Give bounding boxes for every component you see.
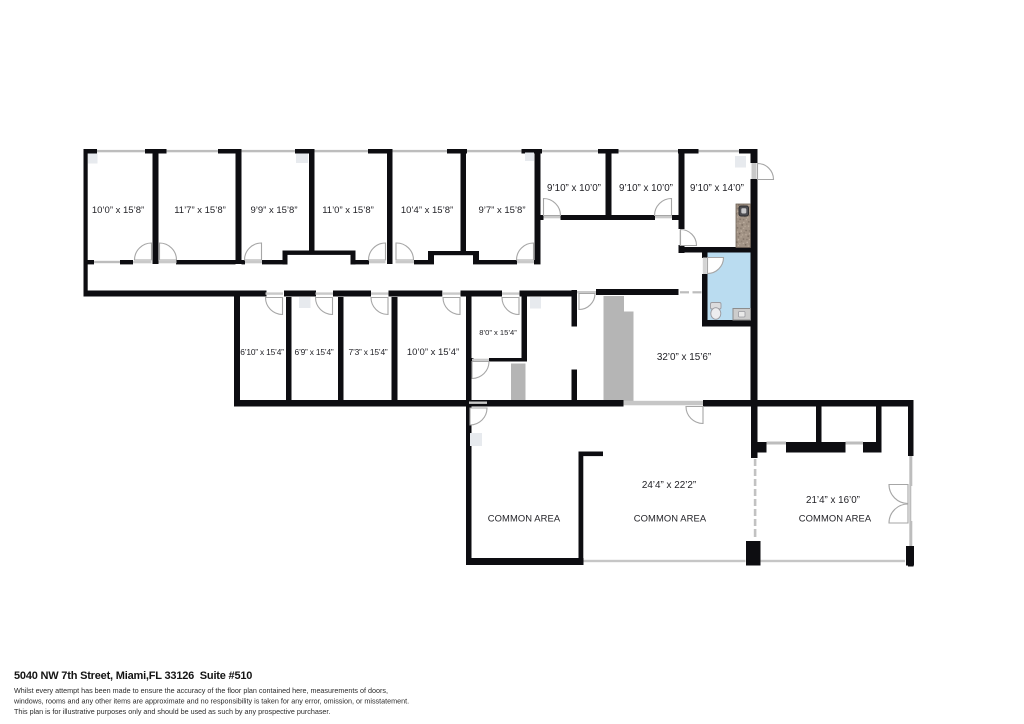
svg-text:COMMON AREA: COMMON AREA (488, 513, 561, 524)
svg-text:8’0” x 15’4”: 8’0” x 15’4” (479, 328, 517, 337)
svg-text:9’10” x 10’0”: 9’10” x 10’0” (547, 183, 601, 194)
svg-text:6’9” x 15’4”: 6’9” x 15’4” (294, 347, 333, 357)
svg-text:10’0” x 15’4”: 10’0” x 15’4” (407, 347, 459, 358)
svg-text:10’0” x 15’8”: 10’0” x 15’8” (92, 205, 144, 216)
svg-text:6’10” x 15’4”: 6’10” x 15’4” (240, 347, 284, 357)
svg-text:This plan is for illustrative: This plan is for illustrative purposes o… (14, 707, 330, 716)
svg-text:COMMON AREA: COMMON AREA (799, 513, 872, 524)
svg-text:5040 NW 7th Street, Miami,FL 3: 5040 NW 7th Street, Miami,FL 33126 Suite… (14, 670, 252, 682)
svg-text:9’10” x 10’0”: 9’10” x 10’0” (619, 183, 673, 194)
svg-text:24’4” x 22’2”: 24’4” x 22’2” (642, 480, 696, 491)
svg-text:windows, rooms and any other i: windows, rooms and any other items are a… (13, 697, 409, 706)
svg-text:9’10” x 14’0”: 9’10” x 14’0” (690, 183, 744, 194)
svg-text:11’0” x 15’8”: 11’0” x 15’8” (322, 205, 374, 216)
svg-text:COMMON AREA: COMMON AREA (634, 513, 707, 524)
svg-text:9’9” x 15’8”: 9’9” x 15’8” (251, 205, 298, 216)
svg-text:9’7” x 15’8”: 9’7” x 15’8” (479, 205, 526, 216)
svg-text:7’3” x 15’4”: 7’3” x 15’4” (348, 347, 387, 357)
svg-text:11’7” x 15’8”: 11’7” x 15’8” (174, 205, 226, 216)
svg-text:32’0” x 15’6”: 32’0” x 15’6” (657, 352, 711, 363)
svg-text:10’4” x 15’8”: 10’4” x 15’8” (401, 205, 453, 216)
svg-text:Whilst every attempt has been: Whilst every attempt has been made to en… (14, 686, 388, 695)
svg-text:21’4” x 16’0”: 21’4” x 16’0” (806, 495, 860, 506)
